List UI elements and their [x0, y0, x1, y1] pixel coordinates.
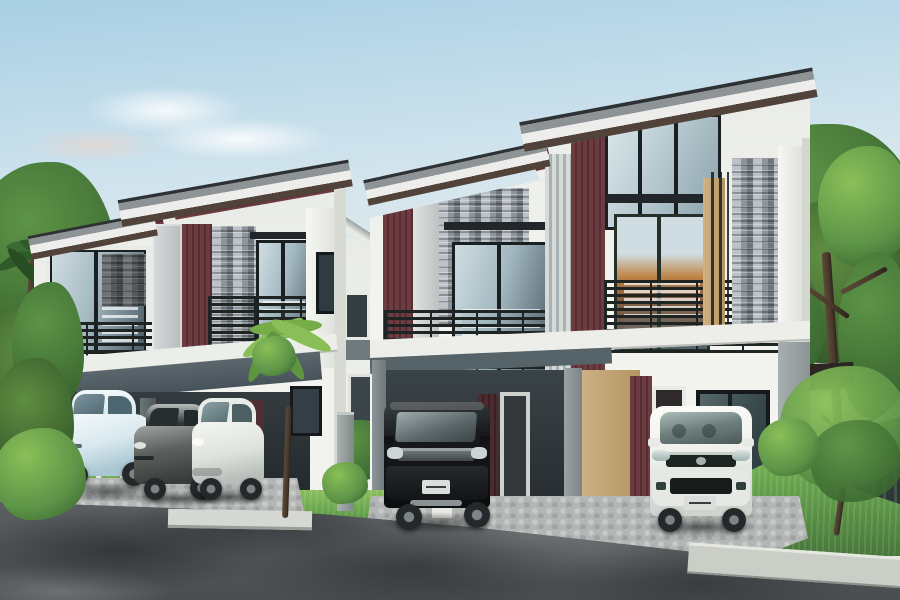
- car-windshield: [660, 412, 742, 444]
- car-windshield: [395, 412, 477, 442]
- ground-floor-window: [290, 386, 322, 436]
- car-mirror: [648, 438, 660, 447]
- car-wheel: [396, 504, 422, 530]
- cloud-wisp: [30, 128, 160, 162]
- dark-slat-screen: [711, 172, 729, 332]
- car-wheel: [200, 478, 222, 500]
- car-fog-light: [656, 482, 666, 490]
- car-white-hatchback: [190, 398, 268, 508]
- car-mirror: [480, 436, 490, 444]
- car-grille: [398, 451, 474, 461]
- door-awning: [444, 222, 556, 230]
- car-headlight: [192, 438, 204, 446]
- cloud: [150, 118, 330, 160]
- plate-text: [689, 502, 711, 504]
- car-headlight: [387, 447, 403, 459]
- car-roof-highlight: [390, 402, 484, 410]
- car-headlight: [652, 450, 670, 461]
- car-seat: [702, 424, 716, 438]
- foliage-blob: [758, 418, 820, 476]
- car-wheel: [144, 478, 166, 500]
- car-fog-light: [736, 482, 746, 490]
- car-logo: [696, 457, 706, 465]
- shrub: [322, 462, 368, 504]
- car-wheel: [240, 478, 262, 500]
- car-mirror: [742, 438, 754, 447]
- car-side-window: [232, 404, 252, 423]
- car-grille: [134, 456, 154, 460]
- car-headlight: [732, 450, 750, 461]
- car-headlight: [134, 442, 146, 449]
- car-seat: [672, 424, 686, 438]
- corner-column: [778, 146, 804, 344]
- car-lower-trim: [192, 468, 222, 476]
- car-wheel: [722, 508, 746, 532]
- car-wheel: [658, 508, 682, 532]
- stone-veneer-column: [732, 158, 778, 334]
- foliage-blob: [252, 336, 296, 376]
- car-skid-plate: [410, 500, 462, 506]
- car-license-plate: [422, 480, 450, 494]
- door-awning: [250, 232, 312, 239]
- foliage-blob: [0, 428, 86, 520]
- plate-text: [426, 486, 446, 488]
- car-lower-intake: [670, 478, 732, 494]
- glass-mullion: [674, 117, 678, 227]
- glass-mullion: [638, 117, 642, 227]
- car-license-plate: [684, 496, 716, 510]
- car-windshield: [149, 408, 179, 428]
- foliage-blob: [818, 146, 900, 266]
- curb-slab: [168, 509, 312, 531]
- street-scene-rendering: [0, 0, 900, 600]
- car-headlight: [471, 447, 487, 459]
- car-wheel: [464, 502, 490, 528]
- car-black-mpv: [380, 384, 496, 536]
- car-side-window: [108, 396, 132, 416]
- car-mirror: [384, 436, 394, 444]
- foliage-blob: [810, 420, 900, 502]
- stone-panel: [102, 254, 146, 306]
- car-white-suv: [646, 390, 756, 538]
